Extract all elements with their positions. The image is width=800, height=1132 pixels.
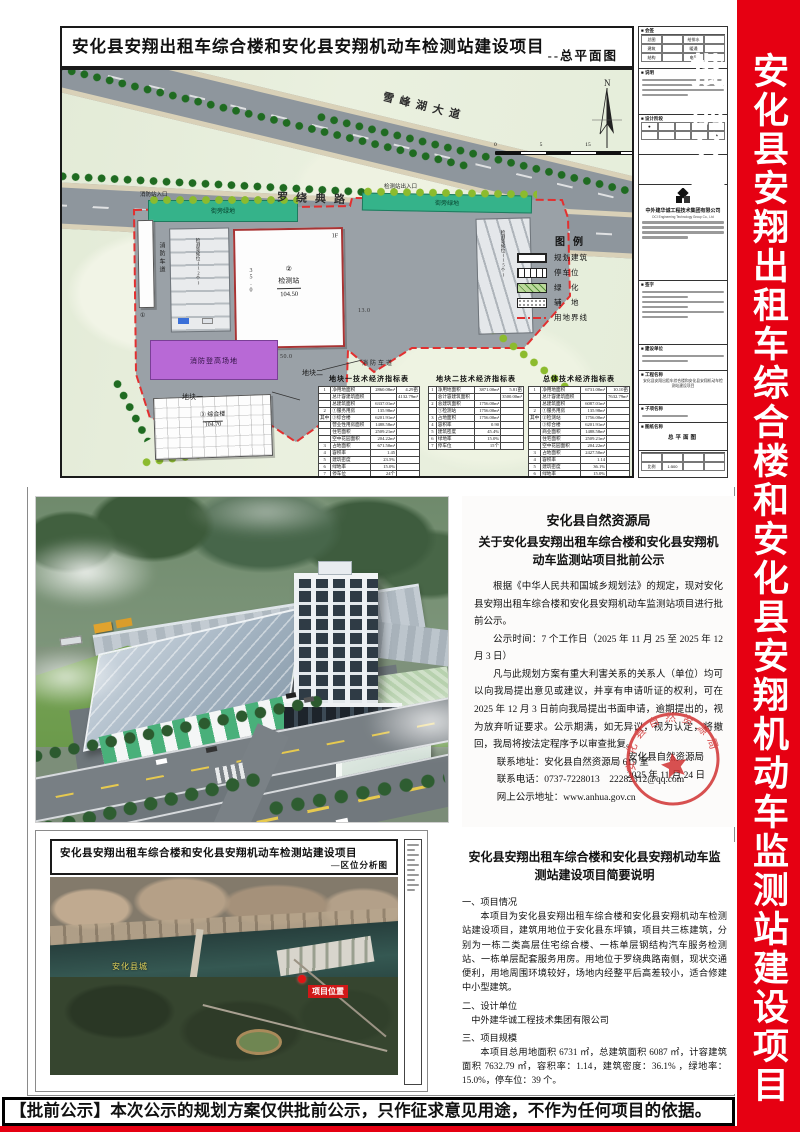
brief-heading-3: 三、项目规模 [462, 1030, 727, 1044]
brief-paragraph-1: 本项目为安化县安翔出租车综合楼和安化县安翔机动车检测站建设项目，建筑用地位于安化… [462, 909, 727, 995]
fire-lane-label-h: 消防车道 [362, 358, 394, 367]
dimension-label: 35.0 [248, 268, 254, 294]
road-label-luorao: 罗绕典路 [277, 189, 354, 208]
brief-paragraph-3: 本项目总用地面积 6731 ㎡，总建筑面积 6087 ㎡，计容建筑面积 7632… [462, 1045, 727, 1088]
parking-left-label: 检测等候位(12个) [195, 238, 201, 285]
discipline-label: 给排水 [683, 35, 704, 44]
location-map-sheet: 安化县安翔出租车综合楼和安化县安翔机动车检测站建设项目 —区位分析图 安化县城 … [35, 830, 428, 1092]
station-entrance-label: 检测站出入口 [384, 182, 417, 190]
table-row: 总建筑面积6087.01m² [529, 400, 630, 407]
svg-text:N: N [604, 78, 611, 88]
station-floor-label: 1F [332, 231, 339, 241]
legend-label: 停车位 [554, 267, 580, 278]
render-tower-roofbox [318, 561, 352, 575]
plot1-label: 地块一 [182, 392, 203, 402]
city-label: 安化县城 [112, 961, 148, 972]
table-row: 1净用地面积3871.00m²5.81亩 [429, 387, 524, 394]
notice-paragraph: 公示时间：7 个工作日（2025 年 11 月 25 至 2025 年 12 月… [474, 632, 723, 667]
mist [35, 537, 156, 607]
green-strip-label: 街旁绿地 [211, 209, 235, 215]
table-row: 总建筑面积6337.01m² [319, 400, 420, 407]
table-row: 1净用地面积6731.00m²10.10亩 [529, 387, 630, 394]
notice-organization: 安化县自然资源局 [462, 510, 735, 529]
locmap-titleblock [404, 839, 422, 1085]
scale-tick: 0 [494, 142, 497, 148]
legend-swatch-auxiliary [517, 298, 547, 308]
notice-title: 关于安化县安翔出租车综合楼和安化县安翔机动车监测站项目批前公示 [476, 533, 721, 569]
table-row: 7停车位15个 [429, 442, 524, 449]
design-company-name: 中外建华诚工程技术集团有限公司 [641, 208, 725, 215]
car-shape [202, 318, 213, 324]
scale-bar: 0 5 15 30M [494, 142, 634, 157]
brief-heading-1: 一、项目情况 [462, 894, 727, 908]
table-row: 6绿地率15.0% [529, 470, 630, 477]
dimension-label: 13.0 [358, 308, 371, 314]
legend-swatch-planned-building [517, 253, 547, 263]
table-row: 总计容建筑面积4132.79m² [319, 393, 420, 400]
table-row: 商业面积1488.58m² [529, 428, 630, 435]
dimension-label: 50.0 [280, 354, 293, 360]
bottom-disclaimer-banner: 【批前公示】本次公示的规划方案仅供批前公示，只作征求意见用途，不作为任何项目的依… [2, 1097, 735, 1126]
table-row: 3占地面积671.50m² [319, 442, 420, 449]
siteplan-sheet: 安化县安翔出租车综合楼和安化县安翔机动车检测站建设项目 --总平面图 街旁绿地 … [27, 16, 735, 487]
table-row: ③综合楼6201.91m² [529, 421, 630, 428]
station-elevation: 104.50 [277, 288, 301, 300]
legend-label: 规划建筑 [554, 252, 588, 263]
mist [35, 647, 126, 707]
legend-swatch-boundary [517, 317, 547, 319]
indicator-table-plot1: 地块一技术经济指标表 1净用地面积2860.08m²4.29亩总计容建筑面积41… [318, 374, 420, 478]
project-location-label: 项目位置 [308, 985, 348, 998]
discipline-label: 总图 [641, 35, 662, 44]
table-row: 6绿地率15.0% [429, 435, 524, 442]
table-row: 6绿地率15.0% [319, 463, 420, 470]
discipline-label: 建筑 [641, 44, 662, 53]
project-brief: 安化县安翔出租车综合楼和安化县安翔机动车监测站建设项目简要说明 一、项目情况 本… [452, 842, 737, 1094]
fire-rescue-site: 消防登高场地 [150, 340, 278, 380]
table-row: 5建筑密度23.5% [319, 456, 420, 463]
indicator-table-plot2: 地块二技术经济指标表 1净用地面积3871.00m²5.81亩总计容建筑面积35… [428, 374, 524, 450]
titleblock-section-label: 建设单位 [641, 346, 725, 352]
table-row: ①检测站1756.00m² [429, 407, 524, 414]
legend-swatch-greening [517, 283, 547, 293]
city-label-text: 安化县城 [112, 962, 148, 971]
satellite-image: 安化县城 项目位置 [50, 877, 398, 1075]
table-row: 7停车位39个 [529, 477, 630, 478]
table-row: 7停车位24个 [319, 470, 420, 477]
public-notice-document: 安化县自然资源局 关于安化县安翔出租车综合楼和安化县安翔机动车监测站项目批前公示… [462, 496, 735, 827]
table-row: 住宅面积2509.21m² [529, 435, 630, 442]
stage-dot: ● [641, 122, 658, 131]
table-row: 空中花园面积204.22m² [319, 435, 420, 442]
station-number: ② [285, 265, 291, 273]
table-row: 其中③综合楼6201.91m² [319, 414, 420, 421]
station-label: 检测站 [278, 277, 299, 285]
table-row: 2①服务用房135.98m² [529, 407, 630, 414]
tree-row [148, 194, 298, 206]
design-company-name-en: DCI Engineering Technology Group Co., Lt… [645, 215, 721, 219]
stamp-star-icon [659, 750, 689, 779]
titleblock-project-name: 安化县安翔出租车综合楼和安化县安翔机动车检测站建设项目 [641, 378, 725, 391]
tower-label: 综合楼 [207, 412, 225, 419]
table-row: 总计容建筑面积7632.79m² [529, 393, 630, 400]
scale-label: 比例 [641, 462, 662, 471]
table-row: 2①服务用房135.98m² [319, 407, 420, 414]
drawing-name: 总平面图 [641, 430, 725, 444]
scale-value: 1:500 [662, 462, 683, 471]
legend-label: 绿 化 [554, 282, 580, 293]
project-location-text: 项目位置 [312, 987, 344, 996]
titleblock-section-label: 签字 [641, 282, 725, 288]
titleblock-section-label: 子项名称 [641, 406, 725, 412]
building-service-house [137, 220, 155, 308]
table-row: 3占地面积1756.00m² [429, 414, 524, 421]
table-row: 营业性用房面积1488.58m² [319, 421, 420, 428]
legend-title: 图例 [517, 233, 629, 248]
locmap-titlebox: 安化县安翔出租车综合楼和安化县安翔机动车检测站建设项目 —区位分析图 [50, 839, 398, 875]
legend-label: 用地界线 [554, 312, 588, 323]
table-row: 其中②检测站1756.00m² [529, 414, 630, 421]
fire-entrance-label: 消防站入口 [140, 190, 168, 198]
table-row: 空中花园面积204.22m² [529, 442, 630, 449]
brief-heading-2: 二、设计单位 [462, 998, 727, 1012]
table-row: 4容积率1.45 [319, 449, 420, 456]
table-title: 地块二技术经济指标表 [428, 374, 524, 384]
brief-paragraph-2: 中外建华诚工程技术集团有限公司 [462, 1013, 727, 1027]
legend-label: 辅 地 [554, 297, 580, 308]
locmap-subtitle: —区位分析图 [331, 859, 388, 871]
tower-number: ③ [200, 412, 206, 418]
discipline-label: 结构 [641, 53, 662, 62]
table-title: 地块一技术经济指标表 [318, 374, 420, 384]
table-title: 总体技术经济指标表 [528, 374, 630, 384]
render-aerial-image [35, 496, 449, 823]
legend: 图例 规划建筑 停车位 绿 化 辅 地 用地界线 [517, 233, 629, 327]
scale-tick: 15 [585, 142, 591, 148]
car-shape [178, 318, 189, 324]
official-stamp: 安化县自然资源局 [614, 700, 733, 819]
mist [366, 687, 449, 757]
table-row: 4容积率0.90 [429, 421, 524, 428]
green-strip-label: 街旁绿地 [435, 201, 459, 207]
brief-title: 安化县安翔出租车综合楼和安化县安翔机动车监测站建设项目简要说明 [468, 848, 721, 884]
vertical-red-banner: 安化县安翔出租车综合楼和安化县安翔机动车监测站建设项目批前公示 [737, 0, 800, 1132]
parking-right-label: 检测等候位(15个) [500, 230, 506, 277]
indicator-table-overall: 总体技术经济指标表 1净用地面积6731.00m²10.10亩总计容建筑面积76… [528, 374, 630, 478]
siteplan-titlebox: 安化县安翔出租车综合楼和安化县安翔机动车检测站建设项目 --总平面图 [60, 26, 634, 68]
table-row: 总计容建筑面积3500.00m² [429, 393, 524, 400]
table-row: 3占地面积2427.50m² [529, 449, 630, 456]
siteplan-title: 安化县安翔出租车综合楼和安化县安翔机动车检测站建设项目 [72, 33, 624, 57]
mist [186, 496, 346, 537]
fire-site-label: 消防登高场地 [190, 357, 238, 365]
legend-swatch-parking [517, 268, 547, 278]
locmap-title: 安化县安翔出租车综合楼和安化县安翔机动车检测站建设项目 [60, 845, 390, 860]
service-number: ① [140, 312, 145, 319]
project-location-dot [298, 975, 306, 983]
scale-tick: 5 [540, 142, 543, 148]
siteplan-drawing: 街旁绿地 街旁绿地 ② 检测站 104.50 1F ③ 综合楼 104.70 ①… [60, 68, 634, 478]
table-row: 5建筑密度36.1% [529, 463, 630, 470]
bottom-red-strip [0, 1126, 800, 1132]
table-row: 2总建筑面积1756.00m² [429, 400, 524, 407]
building-comprehensive-tower: ③ 综合楼 104.70 [153, 394, 273, 460]
stadium [236, 1029, 282, 1055]
siteplan-subtitle: --总平面图 [548, 45, 618, 64]
tower-elevation: 104.70 [203, 420, 224, 428]
table-row: 住宅面积2509.21m² [319, 428, 420, 435]
fire-lane-label-v: 消防车道 [157, 242, 166, 274]
north-arrow-icon: N [590, 76, 624, 152]
table-row: 5建筑密度45.4% [429, 428, 524, 435]
table-row: 1净用地面积2860.08m²4.29亩 [319, 387, 420, 394]
table-row: 4容积率1.14 [529, 456, 630, 463]
notice-paragraph: 根据《中华人民共和国城乡规划法》的规定，现对安化县安翔出租车综合楼和安化县安翔机… [474, 579, 723, 632]
